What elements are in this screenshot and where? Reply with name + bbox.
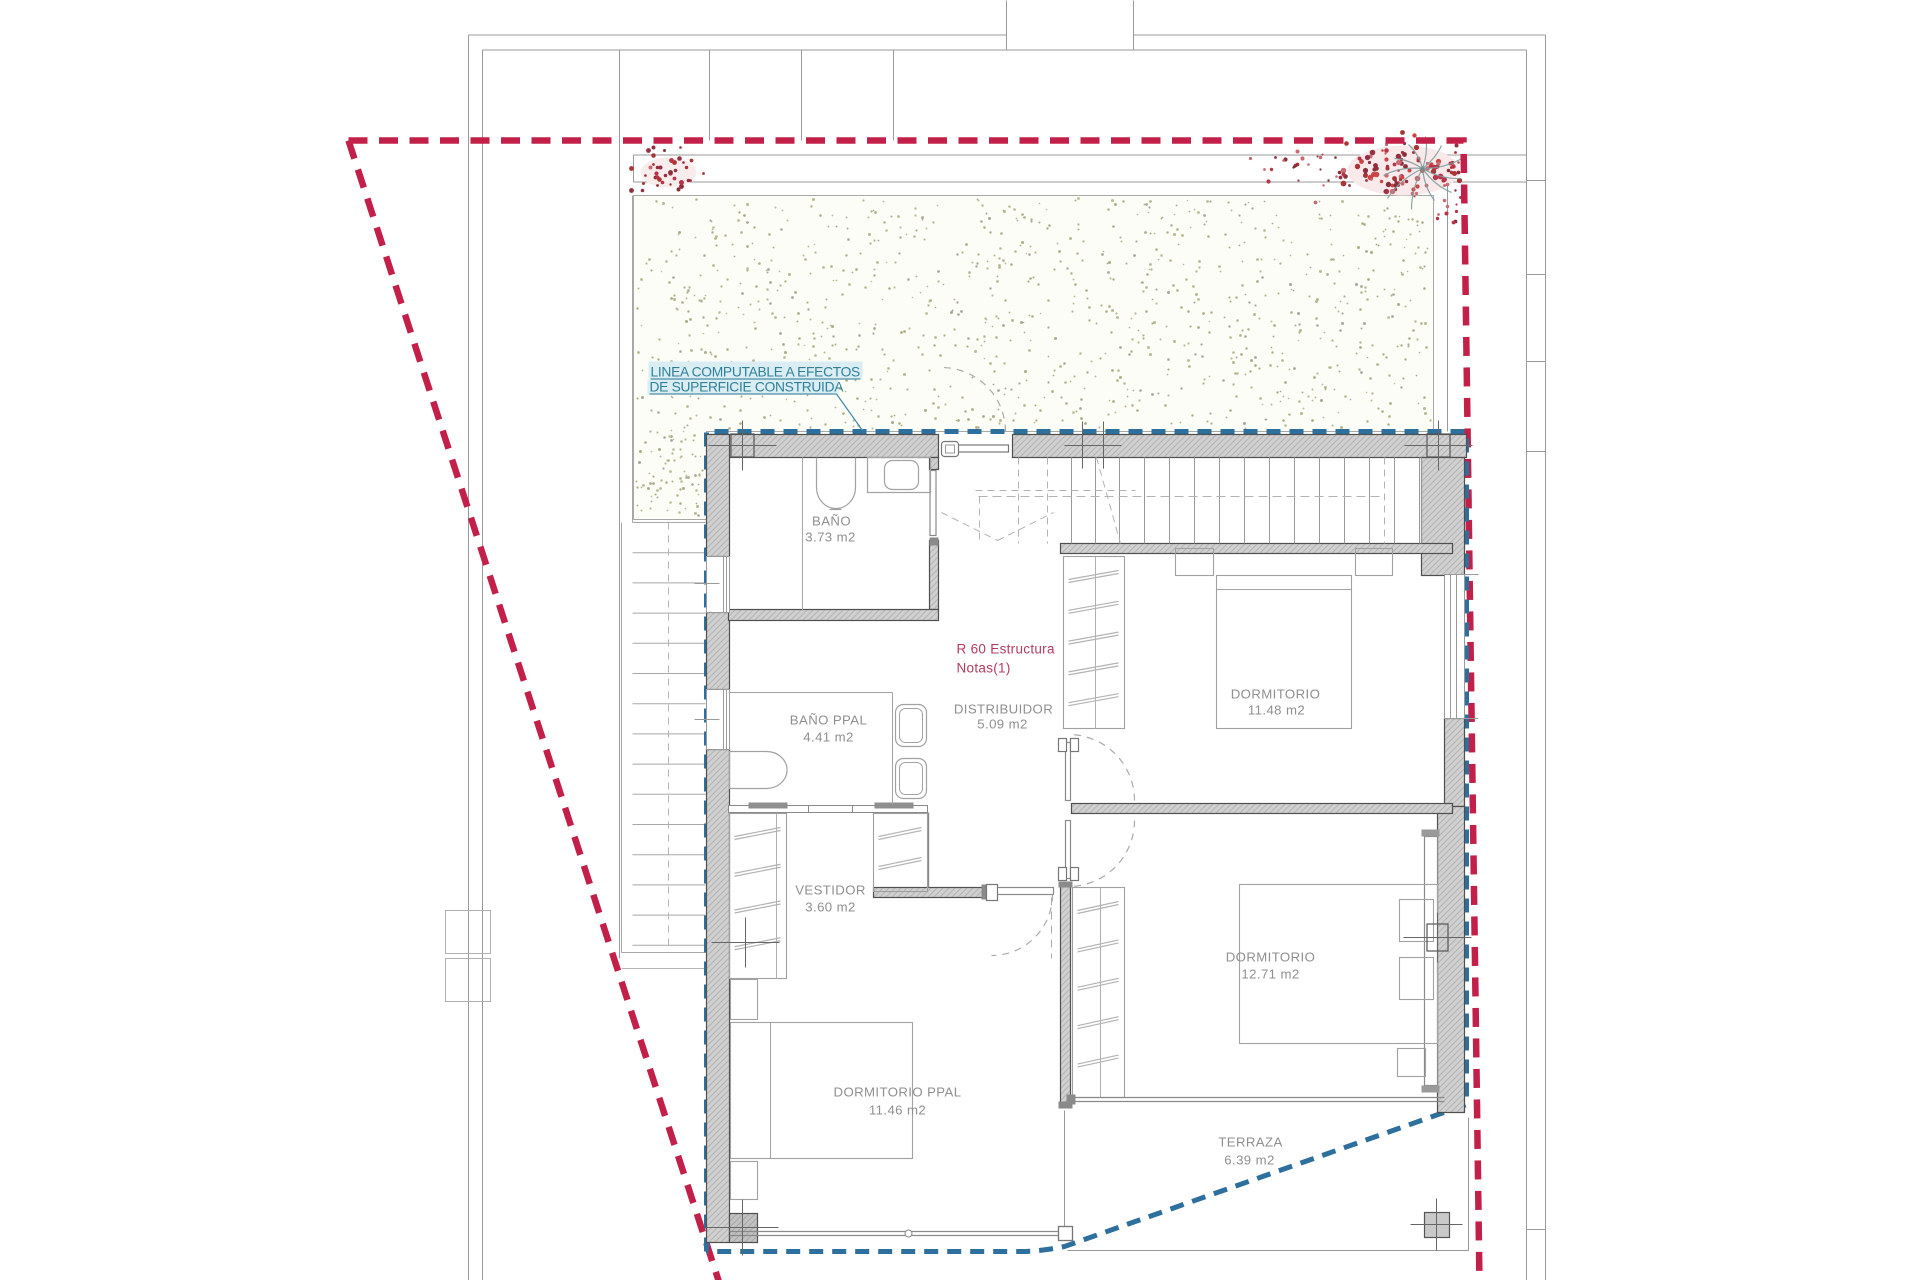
svg-text:LINEA COMPUTABLE A EFECTOS: LINEA COMPUTABLE A EFECTOS <box>651 365 861 380</box>
svg-text:DORMITORIO: DORMITORIO <box>1231 687 1320 702</box>
svg-text:6.39 m2: 6.39 m2 <box>1224 1153 1274 1168</box>
svg-text:11.46 m2: 11.46 m2 <box>869 1103 926 1118</box>
svg-text:Notas(1): Notas(1) <box>957 661 1011 676</box>
svg-text:3.60 m2: 3.60 m2 <box>805 900 855 915</box>
svg-text:DORMITORIO: DORMITORIO <box>1226 950 1315 965</box>
svg-text:DORMITORIO PPAL: DORMITORIO PPAL <box>834 1085 962 1100</box>
svg-text:VESTIDOR: VESTIDOR <box>795 883 866 898</box>
svg-text:DE SUPERFICIE CONSTRUIDA: DE SUPERFICIE CONSTRUIDA <box>650 380 845 395</box>
svg-text:12.71 m2: 12.71 m2 <box>1241 967 1299 982</box>
svg-text:5.09 m2: 5.09 m2 <box>977 717 1027 732</box>
svg-text:4.41 m2: 4.41 m2 <box>803 730 853 745</box>
svg-text:DISTRIBUIDOR: DISTRIBUIDOR <box>954 702 1053 717</box>
svg-text:3.73 m2: 3.73 m2 <box>805 530 855 545</box>
svg-text:TERRAZA: TERRAZA <box>1218 1135 1282 1150</box>
svg-text:11.48 m2: 11.48 m2 <box>1248 703 1305 718</box>
svg-text:BAÑO PPAL: BAÑO PPAL <box>790 713 867 728</box>
svg-text:BAÑO: BAÑO <box>812 514 851 529</box>
svg-text:R 60 Estructura: R 60 Estructura <box>957 642 1055 657</box>
